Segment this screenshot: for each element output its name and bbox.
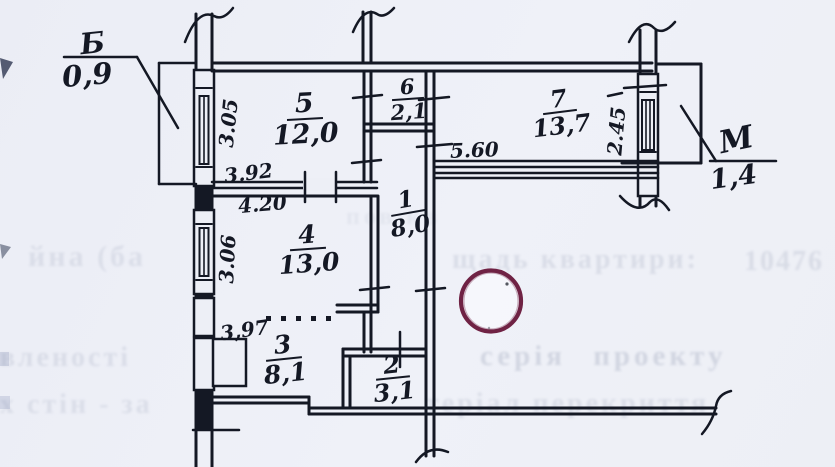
window-left-1 [194,70,214,186]
room-4-number: 4 [288,221,325,252]
wall-break-mark [353,8,394,32]
point-m-letter: М [716,119,757,161]
room-1-label: 1 8,0 [378,182,439,244]
dimension-5-60: 5.60 [450,137,500,163]
window-left-3 [194,298,214,336]
wall-break-mark [185,8,233,42]
wall-break-mark [620,196,669,210]
point-m-value: 1,4 [708,159,759,196]
room-7-label: 7 13,7 [517,79,603,144]
dotted-partition [266,316,331,321]
wall-break-mark [416,450,448,462]
wall-break-mark [629,22,675,42]
dimension-3-06: 3.06 [214,234,241,284]
balcony-door-left [194,338,214,390]
edge-smudges [0,58,13,409]
scanned-floor-plan-page: пов кв йна (ба щадь квартири: 10476 влен… [0,0,835,467]
room-2-label: 2 3,1 [359,347,427,409]
room-5-label: 5 12,0 [260,86,349,153]
room-4-label: 4 13,0 [270,218,346,281]
dimension-3-05: 3.05 [214,98,243,149]
room-5-area: 12,0 [262,118,349,153]
room-6-label: 6 2,1 [378,72,437,125]
room-6-area: 2,1 [380,98,438,125]
door-leaf [213,339,246,386]
dimension-4-20: 4.20 [237,190,288,218]
point-b-value: 0,9 [61,56,114,94]
window-left-2 [194,210,214,294]
stamp-circle [461,271,521,332]
room-5-number: 5 [285,89,323,121]
room-4-area: 13,0 [272,248,346,281]
dimension-2-45: 2.45 [602,106,630,157]
